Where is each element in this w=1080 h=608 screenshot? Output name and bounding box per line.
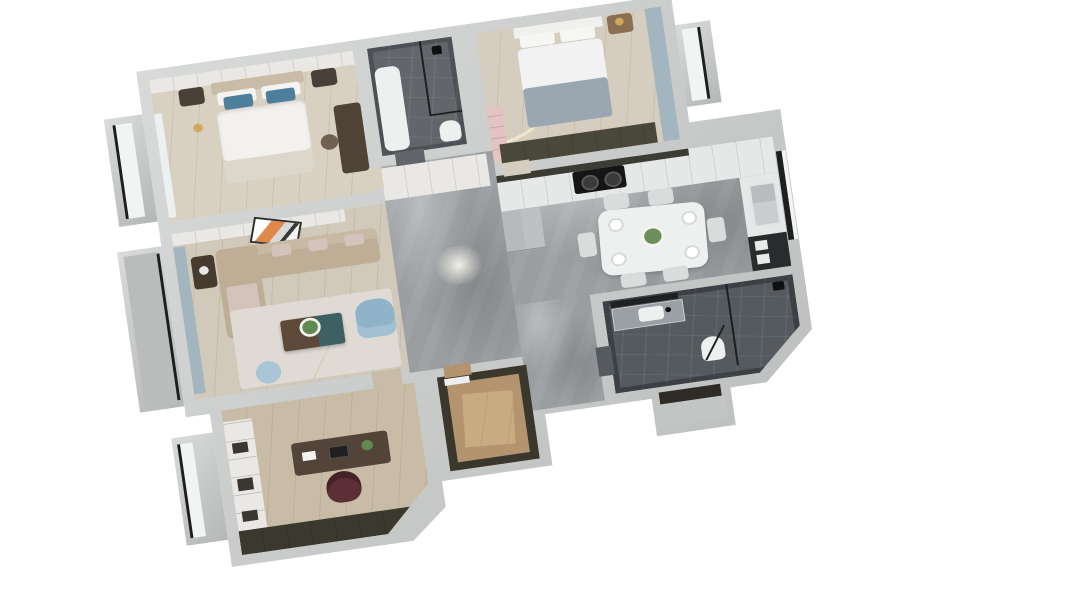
master-bed [210, 70, 317, 185]
tray-icon [199, 266, 210, 276]
bedroom-2 [475, 7, 679, 166]
walk-in-closet [437, 365, 540, 471]
dining-chair [577, 232, 598, 258]
shelf-item [237, 477, 254, 491]
faucet-icon [665, 307, 671, 313]
toilet [438, 119, 462, 142]
bathtub-vanity [374, 65, 411, 152]
writing-desk [291, 430, 392, 476]
shelf-item [242, 510, 259, 522]
paper-icon [302, 451, 317, 461]
dining-chair [662, 265, 689, 282]
shower-head-icon [772, 281, 785, 291]
plant [301, 319, 318, 335]
desk-chair [320, 133, 339, 151]
render-canvas [0, 0, 1080, 608]
burner-icon [580, 174, 599, 192]
shower-fixture-icon [431, 45, 442, 55]
dining-table [597, 201, 709, 276]
bay-glass [112, 123, 145, 219]
nightstand-left [178, 86, 205, 107]
gold-floor-lamp [193, 123, 204, 133]
nightstand-right [310, 67, 337, 88]
fridge [501, 206, 545, 252]
duvet [216, 100, 315, 184]
desk-plant [361, 439, 374, 451]
plate [684, 245, 701, 260]
plate [611, 252, 628, 267]
dining-chair [706, 216, 727, 242]
shelf-item [232, 441, 249, 453]
bed [512, 15, 615, 130]
burgundy-office-chair [324, 469, 363, 505]
sofa-cushion [307, 238, 328, 252]
black-pantry-cabinet [748, 232, 791, 272]
wood-floor-panel [462, 390, 516, 447]
bathroom-1 [367, 37, 467, 156]
glass-shower-partition [429, 110, 462, 116]
display-box [754, 240, 768, 251]
plate [681, 210, 698, 225]
glass-shower-partition [419, 41, 431, 114]
living-room [171, 203, 409, 399]
blue-armchair [353, 296, 397, 339]
dining-chair [620, 271, 647, 288]
apartment-plan [136, 0, 834, 571]
plate [608, 217, 625, 232]
table-plant [644, 228, 663, 245]
glass-shower [725, 284, 739, 366]
sink [638, 305, 665, 322]
sofa-cushion [344, 233, 365, 247]
display-box [756, 253, 770, 264]
sofa-cushion [271, 243, 292, 257]
ceiling-light-flare [429, 242, 488, 287]
side-table [190, 254, 218, 290]
master-bedroom [149, 51, 373, 222]
burner-icon [603, 170, 622, 188]
laptop-icon [328, 444, 349, 459]
